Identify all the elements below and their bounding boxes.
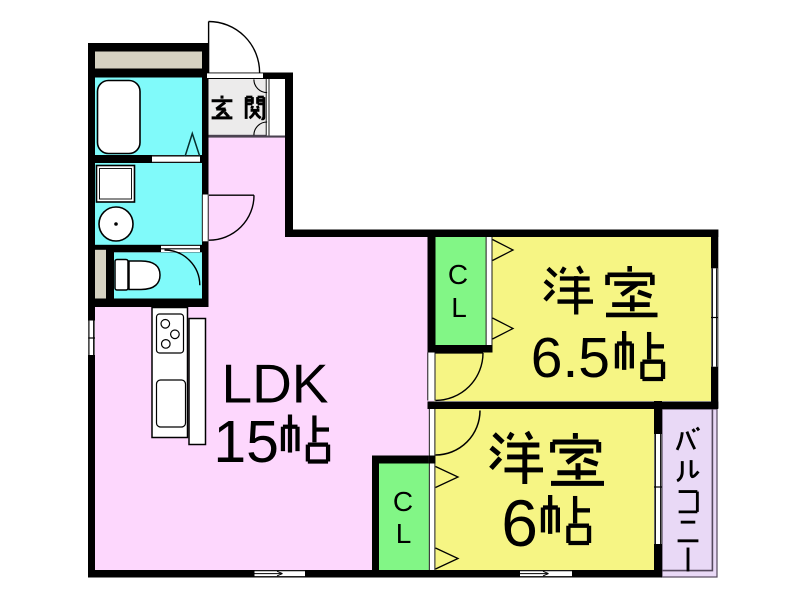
svg-text:LDK: LDK <box>222 353 329 415</box>
svg-text:6.5: 6.5 <box>531 326 610 390</box>
svg-text:L: L <box>396 518 412 549</box>
svg-text:15: 15 <box>213 409 279 475</box>
svg-text:C: C <box>448 259 468 290</box>
svg-text:L: L <box>451 292 467 323</box>
svg-text:6: 6 <box>501 486 538 560</box>
svg-text:C: C <box>393 486 413 517</box>
